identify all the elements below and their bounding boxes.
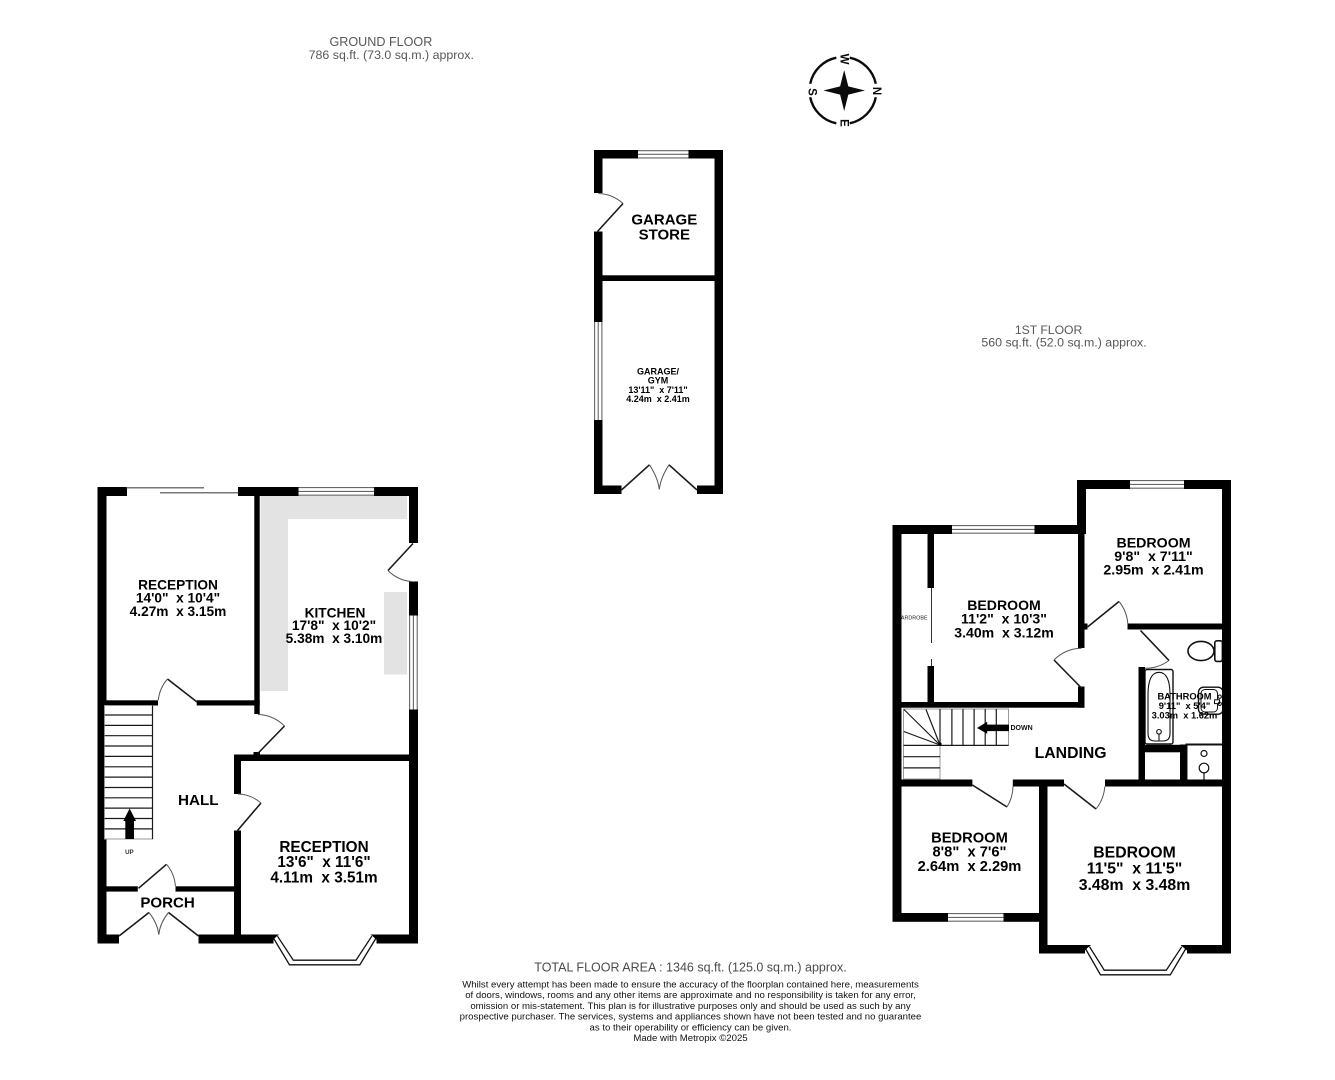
svg-text:BATHROOM: BATHROOM xyxy=(1157,691,1211,701)
svg-text:E: E xyxy=(838,119,850,127)
svg-text:omission or mis-statement. Thi: omission or mis-statement. This plan is … xyxy=(470,1001,910,1012)
svg-text:3.40m x 3.12m: 3.40m x 3.12m xyxy=(954,624,1054,640)
svg-text:9'11" x 5'4": 9'11" x 5'4" xyxy=(1159,701,1211,711)
svg-text:S: S xyxy=(806,88,818,96)
svg-text:4.11m x 3.51m: 4.11m x 3.51m xyxy=(270,869,377,886)
svg-text:2.64m x 2.29m: 2.64m x 2.29m xyxy=(918,859,1022,875)
svg-text:BEDROOM: BEDROOM xyxy=(1093,844,1176,861)
svg-text:5.38m x 3.10m: 5.38m x 3.10m xyxy=(286,631,383,646)
svg-text:4.27m x 3.15m: 4.27m x 3.15m xyxy=(130,604,227,619)
svg-text:3.48m x 3.48m: 3.48m x 3.48m xyxy=(1079,877,1191,894)
svg-text:3.03m x 1.62m: 3.03m x 1.62m xyxy=(1152,711,1218,721)
svg-text:as to their operability or eff: as to their operability or efficiency ca… xyxy=(590,1022,792,1033)
svg-text:LANDING: LANDING xyxy=(1035,745,1107,762)
svg-text:Made with Metropix ©2025: Made with Metropix ©2025 xyxy=(633,1033,747,1044)
svg-text:2.95m x 2.41m: 2.95m x 2.41m xyxy=(1103,563,1203,579)
svg-text:TOTAL FLOOR AREA : 1346 sq.ft.: TOTAL FLOOR AREA : 1346 sq.ft. (125.0 sq… xyxy=(534,961,846,975)
svg-text:of doors, windows, rooms and a: of doors, windows, rooms and any other i… xyxy=(465,990,916,1001)
svg-text:HALL: HALL xyxy=(178,792,219,809)
svg-text:N: N xyxy=(870,87,882,95)
svg-text:786 sq.ft. (73.0 sq.m.) approx: 786 sq.ft. (73.0 sq.m.) approx. xyxy=(309,48,474,62)
svg-text:560 sq.ft. (52.0 sq.m.) approx: 560 sq.ft. (52.0 sq.m.) approx. xyxy=(981,336,1146,350)
svg-text:4.24m x 2.41m: 4.24m x 2.41m xyxy=(626,394,690,404)
svg-text:W: W xyxy=(838,54,850,65)
svg-text:STORE: STORE xyxy=(639,227,690,244)
svg-text:DOWN: DOWN xyxy=(1011,725,1033,732)
svg-text:11'5" x 11'5": 11'5" x 11'5" xyxy=(1087,861,1182,878)
svg-text:prospective purchaser. The ser: prospective purchaser. The services, sys… xyxy=(460,1012,922,1023)
svg-text:UP: UP xyxy=(125,849,134,856)
svg-text:PORCH: PORCH xyxy=(140,894,195,911)
svg-text:Whilst every attempt has been: Whilst every attempt has been made to en… xyxy=(462,980,919,991)
